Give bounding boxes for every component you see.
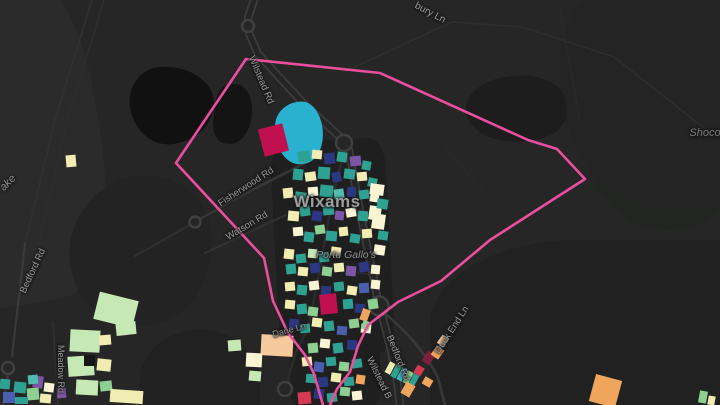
building xyxy=(421,351,435,366)
map-viewport: WixamsPortu Gallo'sShocoakebury LnWilste… xyxy=(0,0,720,405)
road-village-main-street xyxy=(287,150,344,382)
building xyxy=(334,282,345,292)
building xyxy=(292,169,303,181)
building xyxy=(318,377,329,388)
terrain-patch xyxy=(140,330,260,405)
terrain-patch xyxy=(290,336,380,405)
building xyxy=(324,153,336,165)
building xyxy=(347,340,358,351)
road-label-wilstead-bypass: Wilstead B xyxy=(364,355,394,401)
building xyxy=(707,395,715,405)
building xyxy=(343,299,354,310)
building xyxy=(32,375,44,388)
terrain-patch xyxy=(0,0,128,309)
building xyxy=(321,266,332,276)
building xyxy=(69,329,100,353)
terrain-layer xyxy=(0,0,720,405)
building xyxy=(13,381,26,393)
building xyxy=(67,355,94,377)
building xyxy=(297,285,308,296)
building xyxy=(376,198,388,209)
building xyxy=(84,355,95,366)
building xyxy=(437,335,449,348)
building xyxy=(311,317,322,327)
a6-main-casing xyxy=(248,0,400,405)
building xyxy=(358,189,369,199)
terrain-patch xyxy=(269,137,395,358)
building xyxy=(249,370,262,381)
road-label-dane-ln: Dane Ln xyxy=(271,321,306,339)
building xyxy=(335,211,345,221)
building xyxy=(299,205,310,216)
road-bedford-rd-west xyxy=(3,244,25,405)
building xyxy=(337,326,348,336)
building xyxy=(298,391,312,404)
building xyxy=(351,358,362,368)
road-label-bedford-rd-west: Bedford Rd xyxy=(18,247,48,295)
lake xyxy=(272,99,327,167)
building xyxy=(28,375,39,385)
building xyxy=(336,151,347,162)
map[interactable]: WixamsPortu Gallo'sShocoakebury LnWilste… xyxy=(0,0,720,405)
building xyxy=(333,188,344,199)
building xyxy=(40,394,52,404)
building xyxy=(285,300,296,310)
building xyxy=(371,213,386,230)
road-label-meadow-rd: Meadow Rd xyxy=(56,345,66,393)
building xyxy=(362,229,373,239)
road-label-bury-ln: bury Ln xyxy=(413,0,448,25)
building xyxy=(298,267,309,277)
building xyxy=(332,342,343,353)
building xyxy=(308,280,319,290)
building xyxy=(396,367,407,381)
building xyxy=(311,210,322,221)
building xyxy=(346,285,357,295)
building xyxy=(314,224,325,234)
building xyxy=(352,391,363,401)
building xyxy=(319,252,330,263)
building xyxy=(371,265,381,275)
road-label-bedford-rd-south: Bedford Rd xyxy=(384,334,412,383)
building xyxy=(698,390,708,403)
building xyxy=(312,150,323,160)
building xyxy=(289,319,300,330)
building xyxy=(373,244,385,255)
building xyxy=(355,374,365,384)
terrain-patch xyxy=(560,0,720,210)
building xyxy=(319,293,338,315)
building xyxy=(260,334,293,357)
building xyxy=(288,211,300,222)
road-duck-end-ln xyxy=(383,312,445,405)
water-layer xyxy=(0,0,720,405)
building xyxy=(294,191,306,202)
road-label-fisherwood-rd: Fisherwood Rd xyxy=(216,165,276,209)
building xyxy=(110,389,144,404)
building xyxy=(3,392,15,403)
building xyxy=(302,357,313,367)
terrain-patch xyxy=(126,62,218,148)
building xyxy=(65,155,76,168)
building xyxy=(313,361,324,372)
building xyxy=(331,171,342,182)
road-railway-2 xyxy=(38,0,104,246)
road-railway-1 xyxy=(25,0,92,244)
roundabout xyxy=(190,217,201,228)
building xyxy=(258,123,289,156)
terrain-patch xyxy=(430,240,720,405)
building xyxy=(402,370,413,384)
terrain-patch xyxy=(211,82,254,145)
building xyxy=(377,230,388,240)
building xyxy=(100,380,113,391)
building xyxy=(355,304,366,314)
building xyxy=(346,266,357,277)
building xyxy=(361,324,372,334)
road-village-cross-street xyxy=(283,258,376,276)
road-watson-rd xyxy=(205,215,286,253)
road-bury-ln xyxy=(346,22,704,128)
building xyxy=(340,387,351,397)
road-label-watson-rd: Watson Rd xyxy=(224,209,270,242)
building xyxy=(350,155,362,166)
building xyxy=(306,374,317,384)
buildings-layer xyxy=(0,0,720,405)
building xyxy=(43,382,54,392)
building xyxy=(409,373,420,386)
building xyxy=(431,345,445,359)
building xyxy=(357,172,368,182)
building xyxy=(358,211,369,222)
road-field-lines xyxy=(444,12,580,196)
building xyxy=(347,187,357,198)
building xyxy=(284,249,295,260)
building xyxy=(318,167,331,180)
building xyxy=(348,318,359,328)
building xyxy=(297,150,310,163)
roundabout xyxy=(242,20,254,32)
building xyxy=(300,324,311,334)
building xyxy=(115,321,136,336)
boundary-outline xyxy=(176,59,585,405)
road-label-duck-end-ln: Duck End Ln xyxy=(433,304,472,356)
road-fisherwood-rd xyxy=(200,159,313,219)
road-label-wilstead-rd: Wilstead Rd xyxy=(246,54,276,105)
building xyxy=(390,364,401,378)
building xyxy=(246,353,263,368)
building xyxy=(339,362,350,372)
roads-layer xyxy=(0,0,720,405)
poi-label-portu-gallos: Portu Gallo's xyxy=(316,249,376,261)
building xyxy=(413,365,424,377)
building xyxy=(349,233,360,243)
building xyxy=(308,249,318,259)
building xyxy=(308,343,319,354)
building xyxy=(371,280,381,290)
building xyxy=(324,321,335,332)
building xyxy=(303,231,314,242)
road-fisherwood-ext xyxy=(135,225,190,256)
building xyxy=(309,262,320,273)
building xyxy=(359,308,371,322)
building xyxy=(326,392,337,402)
building xyxy=(400,381,415,397)
boundary-layer xyxy=(0,0,720,405)
building xyxy=(228,340,242,352)
building xyxy=(308,187,319,197)
area-label-lake: ake xyxy=(0,172,19,193)
building xyxy=(307,306,318,316)
building xyxy=(589,374,622,405)
building xyxy=(323,205,335,216)
building xyxy=(283,188,294,199)
building xyxy=(339,227,349,237)
road-a6-main xyxy=(248,0,400,405)
building xyxy=(343,168,355,179)
building xyxy=(358,261,369,272)
building xyxy=(304,171,316,181)
building xyxy=(345,207,356,217)
building xyxy=(385,361,396,374)
building xyxy=(26,387,39,400)
building xyxy=(93,292,139,329)
building xyxy=(330,246,341,256)
building xyxy=(76,379,99,395)
building xyxy=(369,183,384,196)
road-meadow-rd xyxy=(53,322,58,405)
building xyxy=(314,389,325,400)
building xyxy=(359,283,370,294)
building xyxy=(57,388,67,399)
building xyxy=(320,339,331,349)
building xyxy=(344,377,355,387)
terrain-patch xyxy=(463,72,568,146)
terrain-patch xyxy=(60,166,220,334)
roundabout xyxy=(278,382,292,396)
building xyxy=(367,177,378,188)
building xyxy=(0,379,10,390)
building xyxy=(319,184,333,197)
building xyxy=(367,298,378,309)
roundabout xyxy=(2,362,14,374)
building xyxy=(295,253,306,263)
building xyxy=(15,397,28,404)
building xyxy=(334,263,345,273)
place-label-wixams: Wixams xyxy=(293,192,360,212)
building xyxy=(361,320,372,331)
labels-layer: WixamsPortu Gallo'sShocoakebury LnWilste… xyxy=(0,0,720,405)
building xyxy=(330,372,341,382)
building xyxy=(286,264,297,275)
area-label-shocott: Shoco xyxy=(689,127,720,139)
building xyxy=(297,304,308,315)
building xyxy=(285,282,296,292)
building xyxy=(293,227,304,237)
building xyxy=(96,358,111,371)
roundabout xyxy=(370,297,389,316)
building xyxy=(361,160,371,170)
building xyxy=(369,192,379,202)
building xyxy=(326,357,337,367)
building xyxy=(326,231,338,242)
terrain-patch xyxy=(585,55,720,230)
building xyxy=(99,334,112,345)
building xyxy=(422,376,434,387)
building xyxy=(368,205,382,221)
roundabout xyxy=(336,135,352,151)
building xyxy=(321,286,332,297)
